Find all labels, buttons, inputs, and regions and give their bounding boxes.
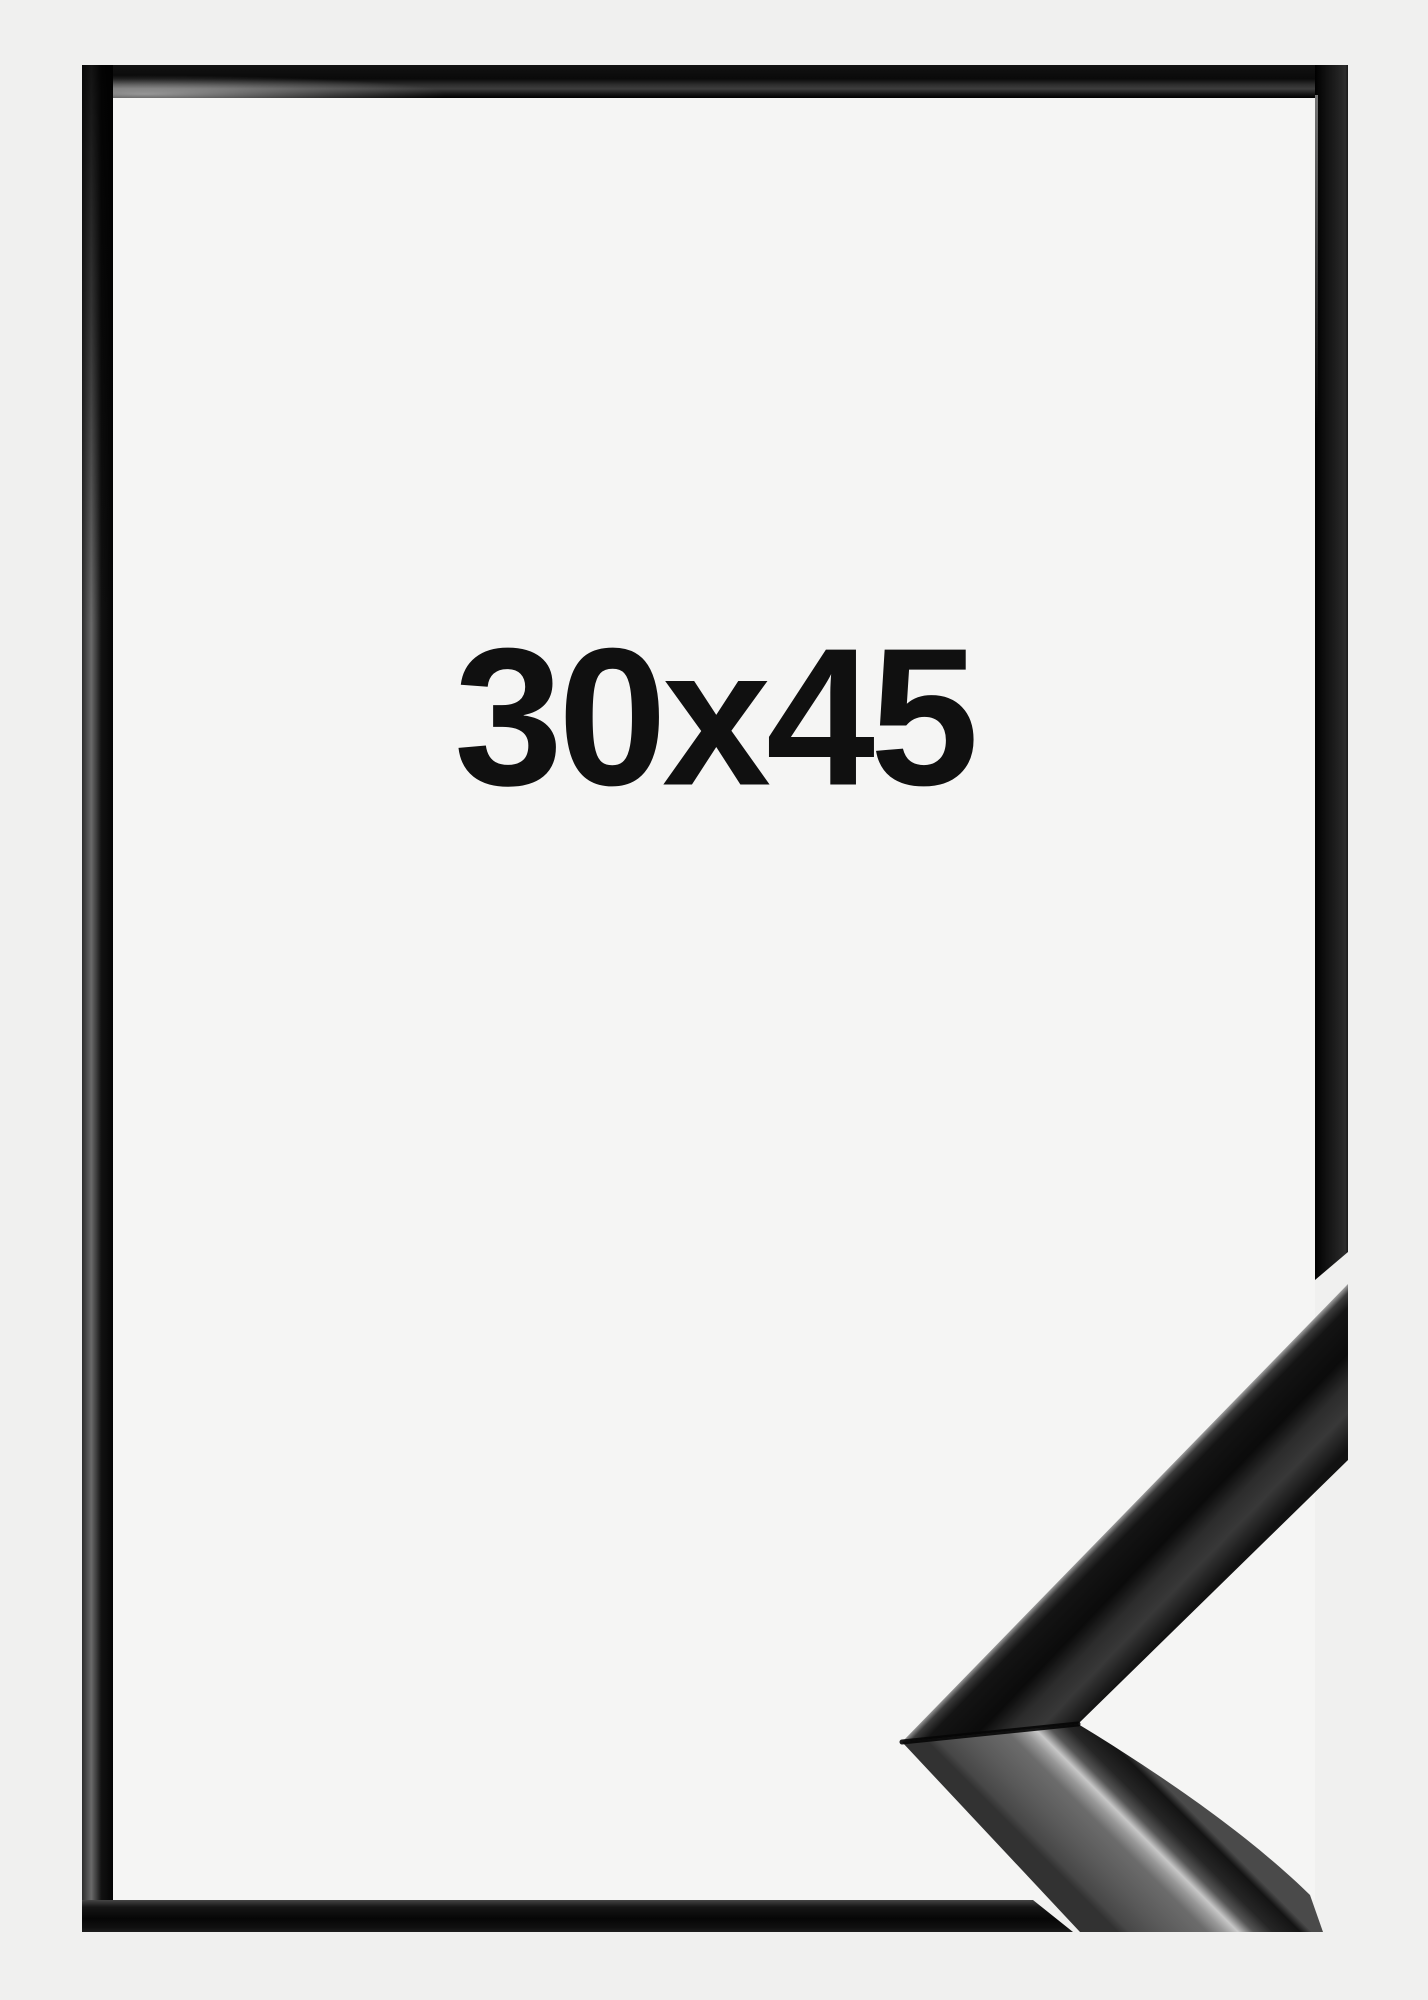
product-image: 30x45 bbox=[0, 0, 1428, 2000]
frame-profile-corner-detail bbox=[0, 0, 1428, 2000]
moulding-lower-arm bbox=[902, 1724, 1323, 1932]
moulding-upper-arm bbox=[902, 1284, 1348, 1742]
